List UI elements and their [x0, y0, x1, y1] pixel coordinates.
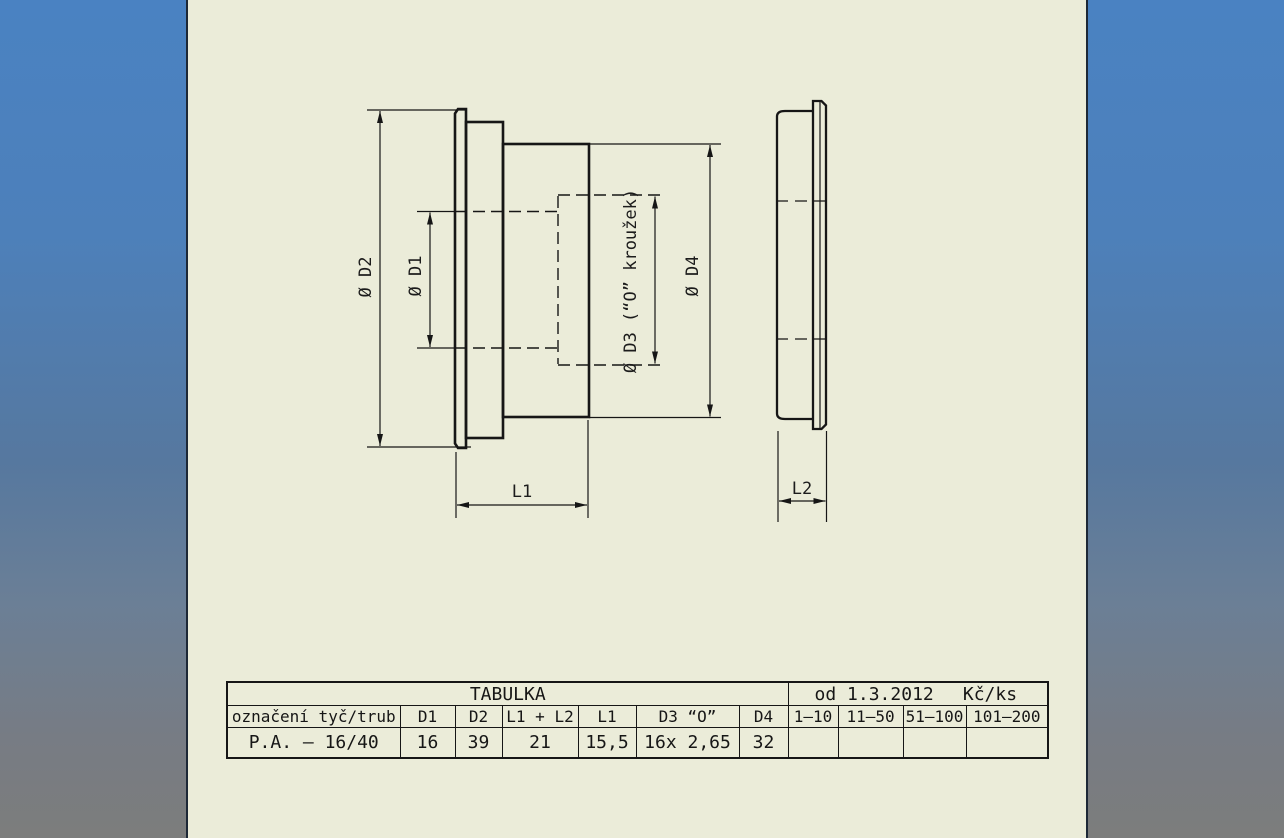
- cell-d4: 32: [739, 728, 788, 759]
- header-d3: D3 “O”: [636, 706, 739, 728]
- body-outline: [503, 144, 589, 417]
- dimension-d3: Ø D3 (“O” kroužek): [621, 189, 655, 373]
- header-qty-1-10: 1–10: [788, 706, 838, 728]
- valid-from-label: od 1.3.2012: [815, 684, 934, 705]
- header-d4: D4: [739, 706, 788, 728]
- header-l1-l2: L1 + L2: [502, 706, 578, 728]
- table-title-row: TABULKA od 1.3.2012 Kč/ks: [227, 682, 1048, 706]
- dimension-label-d4: Ø D4: [683, 256, 703, 297]
- header-d2: D2: [455, 706, 502, 728]
- desktop-background: { "drawing": { "labels": { "d2": "Ø D2",…: [0, 0, 1284, 838]
- dimension-label-d1: Ø D1: [406, 256, 426, 297]
- header-d1: D1: [400, 706, 455, 728]
- cell-price-1-10: [788, 728, 838, 759]
- drawing-sheet: Ø D2 Ø D1 Ø D3 (“O” kroužek) Ø D4 L1: [186, 0, 1088, 838]
- cell-d2: 39: [455, 728, 502, 759]
- header-qty-101-200: 101–200: [966, 706, 1048, 728]
- dimension-label-l1: L1: [512, 482, 532, 502]
- table-date-cell: od 1.3.2012 Kč/ks: [788, 682, 1048, 706]
- unit-label: Kč/ks: [963, 684, 1017, 705]
- table-title-cell: TABULKA: [227, 682, 788, 706]
- dimension-label-d3: Ø D3 (“O” kroužek): [621, 189, 641, 373]
- cell-price-51-100: [903, 728, 966, 759]
- cell-l1: 15,5: [578, 728, 636, 759]
- dimension-l2: L2: [778, 431, 827, 522]
- header-oznaceni: označení tyč/trub: [227, 706, 400, 728]
- cell-designation: P.A. – 16/40: [227, 728, 400, 759]
- header-qty-11-50: 11–50: [838, 706, 903, 728]
- dimension-d1: Ø D1: [406, 212, 455, 349]
- flange-outline: [455, 109, 466, 448]
- table-title: TABULKA: [470, 684, 546, 705]
- dimension-label-l2: L2: [792, 479, 812, 499]
- header-qty-51-100: 51–100: [903, 706, 966, 728]
- cell-l1-l2: 21: [502, 728, 578, 759]
- cell-d1: 16: [400, 728, 455, 759]
- table-header-row: označení tyč/trub D1 D2 L1 + L2 L1 D3 “O…: [227, 706, 1048, 728]
- cell-d3: 16x 2,65: [636, 728, 739, 759]
- table-data-row: P.A. – 16/40 16 39 21 15,5 16x 2,65 32: [227, 728, 1048, 759]
- collar-outline: [466, 122, 503, 438]
- side-view: [776, 101, 828, 429]
- dimension-label-d2: Ø D2: [356, 257, 376, 298]
- header-l1: L1: [578, 706, 636, 728]
- side-collar-outline: [777, 111, 813, 419]
- dimension-l1: L1: [456, 420, 588, 518]
- price-table: TABULKA od 1.3.2012 Kč/ks označení tyč/t…: [226, 681, 1049, 759]
- cell-price-101-200: [966, 728, 1048, 759]
- cell-price-11-50: [838, 728, 903, 759]
